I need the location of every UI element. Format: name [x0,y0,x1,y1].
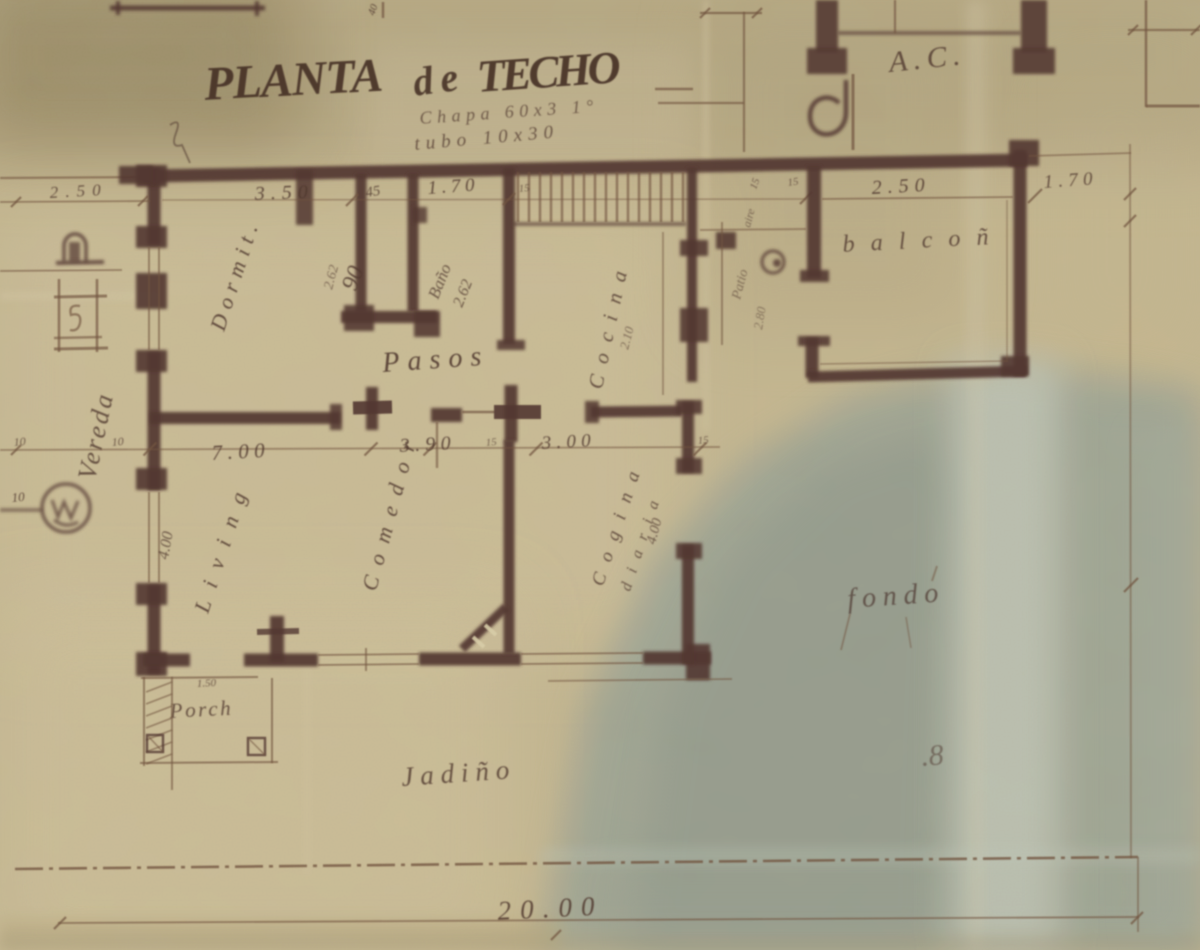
svg-text:Porch: Porch [168,696,232,723]
svg-text:7.00: 7.00 [211,438,267,465]
svg-text:10: 10 [13,434,26,449]
svg-text:3.50: 3.50 [253,181,310,205]
svg-text:10: 10 [111,434,124,449]
svg-text:PLANTA: PLANTA [202,48,391,111]
svg-text:1.50: 1.50 [197,677,217,690]
svg-text:10: 10 [11,489,26,505]
svg-text:TECHO: TECHO [475,41,628,102]
svg-text:15: 15 [787,175,800,188]
svg-text:15: 15 [485,436,498,449]
svg-text:15: 15 [697,434,710,447]
svg-text:45: 45 [364,183,382,201]
svg-text:2.50: 2.50 [871,174,927,199]
svg-text:15: 15 [518,182,531,195]
svg-text:1.70: 1.70 [427,175,476,199]
svg-text:1.70: 1.70 [1043,169,1094,193]
svg-text:.8: .8 [920,738,945,773]
svg-text:3.00: 3.00 [540,430,592,454]
